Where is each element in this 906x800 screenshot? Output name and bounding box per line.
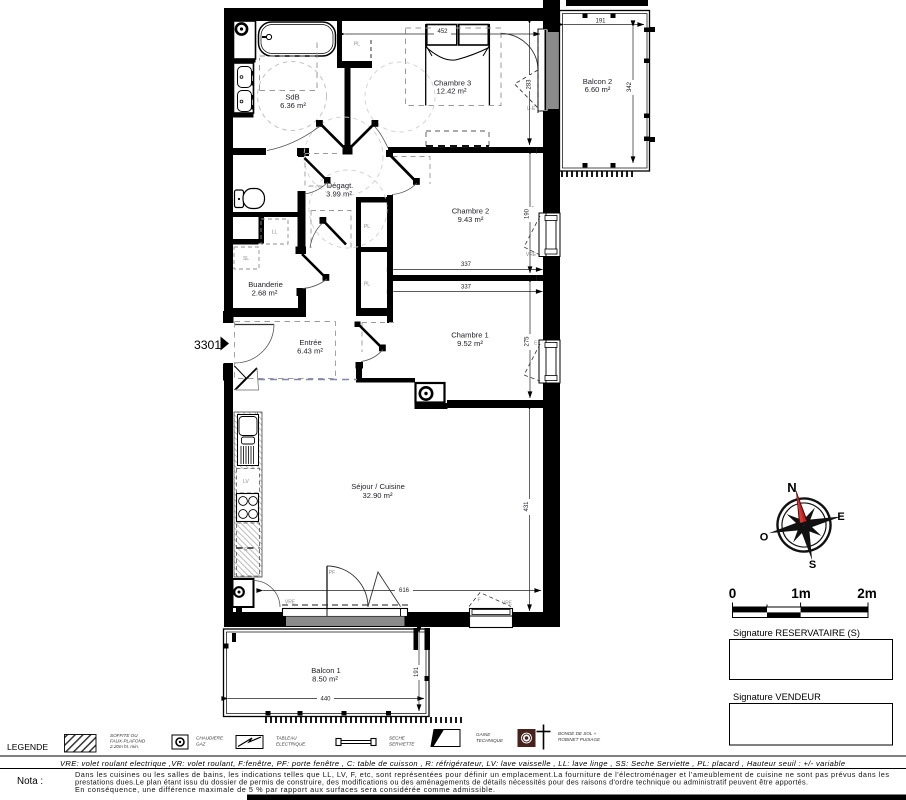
svg-text:En conséquence, une différence: En conséquence, une différence maximale …	[75, 785, 495, 794]
svg-text:PF: PF	[329, 570, 335, 576]
svg-text:9.52 m²: 9.52 m²	[457, 339, 483, 348]
svg-text:VRE: VRE	[502, 601, 513, 607]
svg-text:SERVIETTE: SERVIETTE	[389, 742, 415, 747]
svg-text:275: 275	[525, 336, 531, 347]
svg-text:337: 337	[461, 285, 472, 291]
svg-text:PL: PL	[364, 224, 370, 230]
svg-text:3.99 m²: 3.99 m²	[326, 190, 352, 199]
svg-text:U-E: U-E	[527, 106, 536, 112]
svg-text:2m: 2m	[857, 586, 877, 601]
svg-text:190: 190	[525, 208, 531, 219]
svg-text:2.20m ht. min.: 2.20m ht. min.	[109, 744, 139, 749]
svg-text:12.42 m²: 12.42 m²	[437, 87, 467, 96]
svg-text:FAUX-PLAFOND: FAUX-PLAFOND	[110, 739, 146, 744]
svg-text:Séjour / Cuisine: Séjour / Cuisine	[351, 482, 405, 491]
svg-text:LL: LL	[272, 230, 278, 236]
svg-text:PL: PL	[364, 282, 370, 288]
svg-text:Signature VENDEUR: Signature VENDEUR	[733, 692, 821, 702]
svg-text:283: 283	[527, 79, 533, 90]
svg-text:337: 337	[461, 262, 472, 268]
svg-text:191: 191	[414, 666, 420, 677]
svg-text:CHAUDIERE: CHAUDIERE	[196, 736, 224, 741]
svg-text:S: S	[809, 559, 816, 571]
svg-text:Nota :: Nota :	[17, 776, 43, 787]
svg-text:GAZ: GAZ	[196, 742, 206, 747]
svg-text:BONDE DE SOL +: BONDE DE SOL +	[558, 731, 597, 736]
svg-text:616: 616	[399, 588, 410, 594]
svg-text:SL: SL	[243, 256, 249, 262]
svg-text:N: N	[787, 480, 796, 495]
svg-text:6.43 m²: 6.43 m²	[297, 347, 323, 356]
svg-text:431: 431	[524, 501, 530, 512]
svg-text:9.43 m²: 9.43 m²	[458, 215, 484, 224]
svg-text:E: E	[837, 511, 844, 523]
svg-text:342: 342	[627, 81, 633, 92]
svg-text:SECHE: SECHE	[389, 736, 406, 741]
svg-text:Signature RESERVATAIRE (S): Signature RESERVATAIRE (S)	[733, 628, 860, 638]
svg-text:0: 0	[729, 586, 737, 601]
svg-text:452: 452	[437, 29, 448, 35]
svg-text:VRE: VRE	[526, 252, 537, 258]
svg-text:2.68 m²: 2.68 m²	[252, 289, 278, 298]
svg-text:191: 191	[595, 19, 606, 25]
svg-text:8.50 m²: 8.50 m²	[312, 675, 338, 684]
svg-text:6.36 m²: 6.36 m²	[280, 101, 306, 110]
svg-text:LV: LV	[243, 479, 249, 485]
svg-text:LEGENDE: LEGENDE	[7, 742, 48, 752]
svg-text:F: F	[477, 598, 480, 604]
svg-text:6.60 m²: 6.60 m²	[585, 85, 611, 94]
svg-text:32.90 m²: 32.90 m²	[363, 491, 393, 500]
svg-text:440: 440	[320, 697, 331, 703]
svg-text:TECHNIQUE: TECHNIQUE	[476, 738, 504, 743]
svg-text:GAINE: GAINE	[476, 732, 491, 737]
svg-text:O: O	[760, 532, 769, 544]
svg-text:ROBINET PUISAGE: ROBINET PUISAGE	[558, 737, 601, 742]
svg-text:PL: PL	[354, 42, 360, 48]
svg-text:SOFFITE OU: SOFFITE OU	[110, 733, 138, 738]
svg-text:3301: 3301	[194, 338, 221, 352]
svg-text:TABLEAU: TABLEAU	[276, 736, 297, 741]
svg-text:VRE: volet roulant electrique: VRE: volet roulant electrique ,VR: volet…	[60, 759, 845, 768]
svg-text:ELECTRIQUE: ELECTRIQUE	[276, 742, 306, 747]
svg-text:VRE: VRE	[285, 600, 296, 606]
svg-text:1m: 1m	[791, 586, 811, 601]
